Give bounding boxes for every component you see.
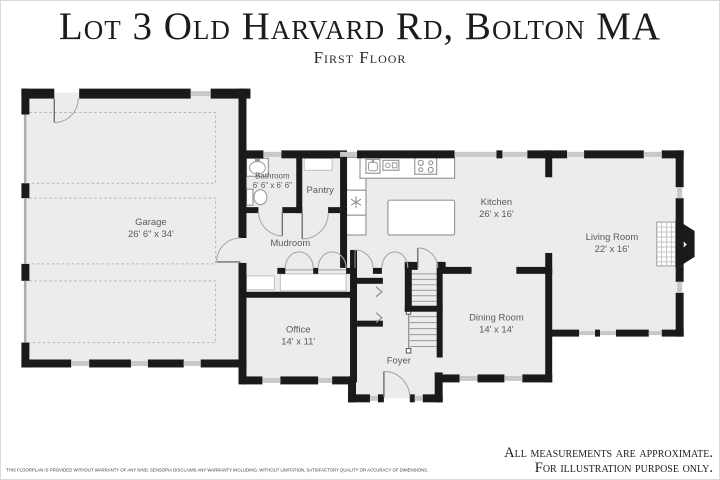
dining-room-label: Dining Room bbox=[469, 313, 524, 324]
footer-note-line1: All measurements are approximate. bbox=[504, 446, 713, 462]
office-label: Office bbox=[286, 325, 311, 336]
footer-disclaimer: THIS FLOORPLAN IS PROVIDED WITHOUT WARRA… bbox=[6, 469, 428, 473]
kitchen-label: Kitchen bbox=[481, 197, 513, 208]
garage-label: Garage bbox=[135, 217, 167, 228]
dining-room-dims: 14' x 14' bbox=[479, 325, 514, 336]
range-icon bbox=[415, 157, 437, 174]
living-room-label: Living Room bbox=[586, 232, 639, 243]
toilet-icon bbox=[246, 189, 266, 205]
foyer-label: Foyer bbox=[387, 355, 411, 366]
floorplan-page: Lot 3 Old Harvard Rd, Bolton MA First Fl… bbox=[0, 0, 720, 480]
pantry-label: Pantry bbox=[307, 185, 335, 196]
pantry-shelf bbox=[304, 158, 332, 170]
kitchen-dims: 26' x 16' bbox=[479, 209, 514, 220]
fridge-icon bbox=[346, 190, 366, 215]
garage-dims: 26' 6" x 34' bbox=[128, 229, 174, 240]
mudroom-label: Mudroom bbox=[270, 238, 310, 249]
office-dims: 14' x 11' bbox=[281, 337, 315, 348]
bathroom-label: Bathroom bbox=[255, 171, 290, 180]
footer-note: All measurements are approximate. For il… bbox=[504, 446, 713, 477]
dishwasher-icon bbox=[383, 160, 399, 170]
living-room-dims: 22' x 16' bbox=[595, 244, 630, 255]
kitchen-sink-icon bbox=[366, 159, 380, 173]
bathroom-dims: 6' 6" x 6' 6" bbox=[253, 181, 292, 190]
kitchen-island bbox=[388, 200, 455, 235]
footer-note-line2: For illustration purpose only. bbox=[504, 461, 713, 477]
floor-plan-svg: Garage 26' 6" x 34' Bathroom 6' 6" x 6' … bbox=[1, 1, 719, 479]
